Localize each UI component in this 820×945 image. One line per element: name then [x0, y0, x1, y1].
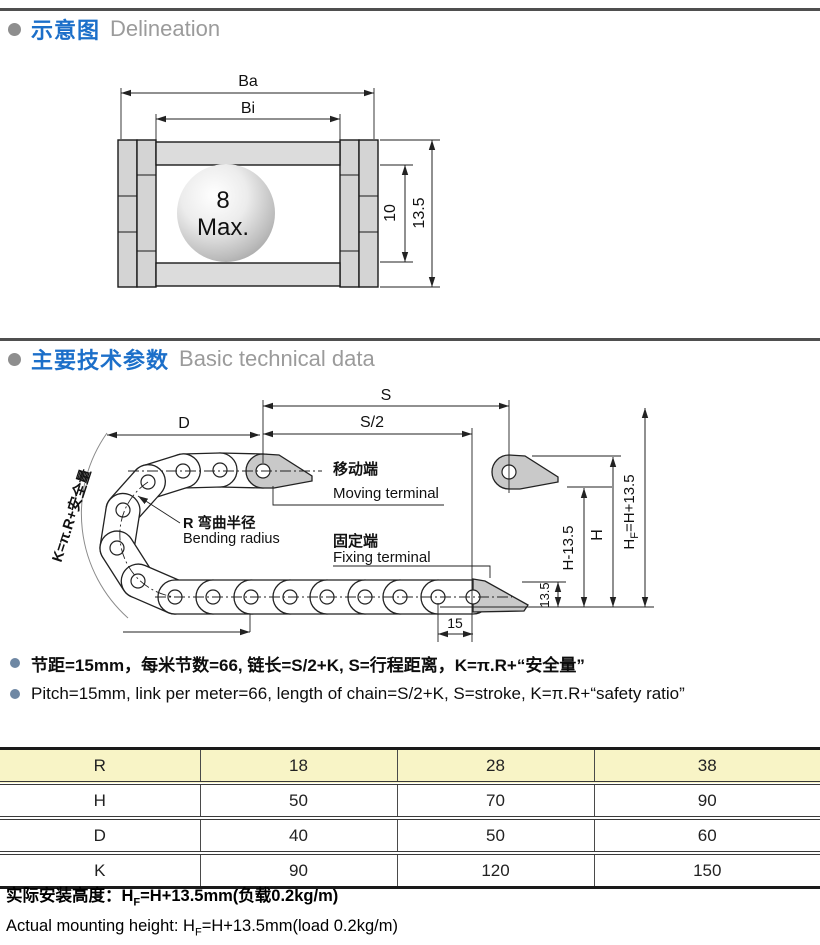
side-view-diagram: K=π.R+安全量 R 弯曲半径	[20, 385, 680, 655]
dim-label-h: H	[589, 529, 606, 541]
table-cell: 120	[397, 853, 594, 888]
section-bullet-icon	[8, 353, 21, 366]
fixing-terminal-label-en: Fixing terminal	[333, 549, 431, 566]
section-title-zh: 主要技术参数	[31, 343, 169, 375]
table-cell: 40	[200, 818, 397, 853]
bend-radius-label-zh: R 弯曲半径	[183, 514, 256, 532]
bullet-icon	[10, 658, 20, 668]
table-row: H 50 70 90	[0, 783, 820, 818]
table-cell: H	[0, 783, 200, 818]
dim-label-inner-height: 10	[382, 204, 399, 222]
section-header-technical-data: 主要技术参数 Basic technical data	[8, 345, 375, 373]
dim-label-d: D	[178, 415, 190, 432]
table-header-cell: 18	[200, 749, 397, 784]
table-row: D 40 50 60	[0, 818, 820, 853]
section-header-delineation: 示意图 Delineation	[8, 15, 220, 43]
bullet-icon	[10, 689, 20, 699]
bend-radius-label-en: Bending radius	[183, 531, 280, 547]
k-formula-label: K=π.R+安全量	[48, 466, 95, 564]
table-cell: D	[0, 818, 200, 853]
table-cell: 70	[397, 783, 594, 818]
table-cell: 90	[594, 783, 820, 818]
dim-label-s: S	[381, 387, 392, 404]
dim-label-h-minus: H-13.5	[560, 525, 577, 570]
table-cell: 50	[397, 818, 594, 853]
section-bullet-icon	[8, 23, 21, 36]
section-divider	[0, 8, 820, 11]
note-text-zh: 节距=15mm，每米节数=66, 链长=S/2+K, S=行程距离，K=π.R+…	[31, 651, 585, 676]
dim-label-hf: HF=H+13.5	[621, 474, 641, 549]
table-cell: K	[0, 853, 200, 888]
ball-label-diameter: 8	[216, 187, 229, 214]
table-cell: 90	[200, 853, 397, 888]
fixing-terminal-leader	[333, 566, 490, 578]
section-divider	[0, 338, 820, 341]
moving-terminal-label-zh: 移动端	[333, 460, 378, 478]
dim-label-outer-height: 13.5	[411, 197, 428, 228]
table-header-cell: 28	[397, 749, 594, 784]
table-header-row: R 18 28 38	[0, 749, 820, 784]
footer-notes: 实际安装高度：HF=H+13.5mm(负载0.2kg/m) Actual mou…	[6, 884, 398, 945]
dim-label-135: 13.5	[537, 582, 552, 607]
table-cell: 50	[200, 783, 397, 818]
dim-label-s-half: S/2	[360, 414, 384, 431]
cross-section-diagram: Ba Bi 8 Max. 10 13.5	[80, 55, 480, 320]
section-title-en: Basic technical data	[179, 346, 375, 372]
section-title-en: Delineation	[110, 16, 220, 42]
section-title-zh: 示意图	[31, 13, 100, 45]
table-cell: 150	[594, 853, 820, 888]
moving-terminal-label-en: Moving terminal	[333, 485, 439, 502]
note-line-zh: 节距=15mm，每米节数=66, 链长=S/2+K, S=行程距离，K=π.R+…	[10, 651, 585, 675]
fixing-terminal-label-zh: 固定端	[333, 532, 378, 550]
table-row: K 90 120 150	[0, 853, 820, 888]
footer-note-zh: 实际安装高度：HF=H+13.5mm(负载0.2kg/m)	[6, 884, 398, 914]
note-text-en: Pitch=15mm, link per meter=66, length of…	[31, 684, 685, 704]
dim-label-bi: Bi	[241, 100, 255, 117]
table-header-cell: R	[0, 749, 200, 784]
table-header-cell: 38	[594, 749, 820, 784]
dim-label-pitch: 15	[447, 615, 463, 631]
footer-note-en: Actual mounting height: HF=H+13.5mm(load…	[6, 914, 398, 944]
table-cell: 60	[594, 818, 820, 853]
dimension-table: R 18 28 38 H 50 70 90 D 40 50 60 K 90 12…	[0, 747, 820, 889]
ball-label-max: Max.	[197, 214, 249, 241]
note-line-en: Pitch=15mm, link per meter=66, length of…	[10, 682, 685, 706]
dim-label-ba: Ba	[238, 73, 258, 90]
